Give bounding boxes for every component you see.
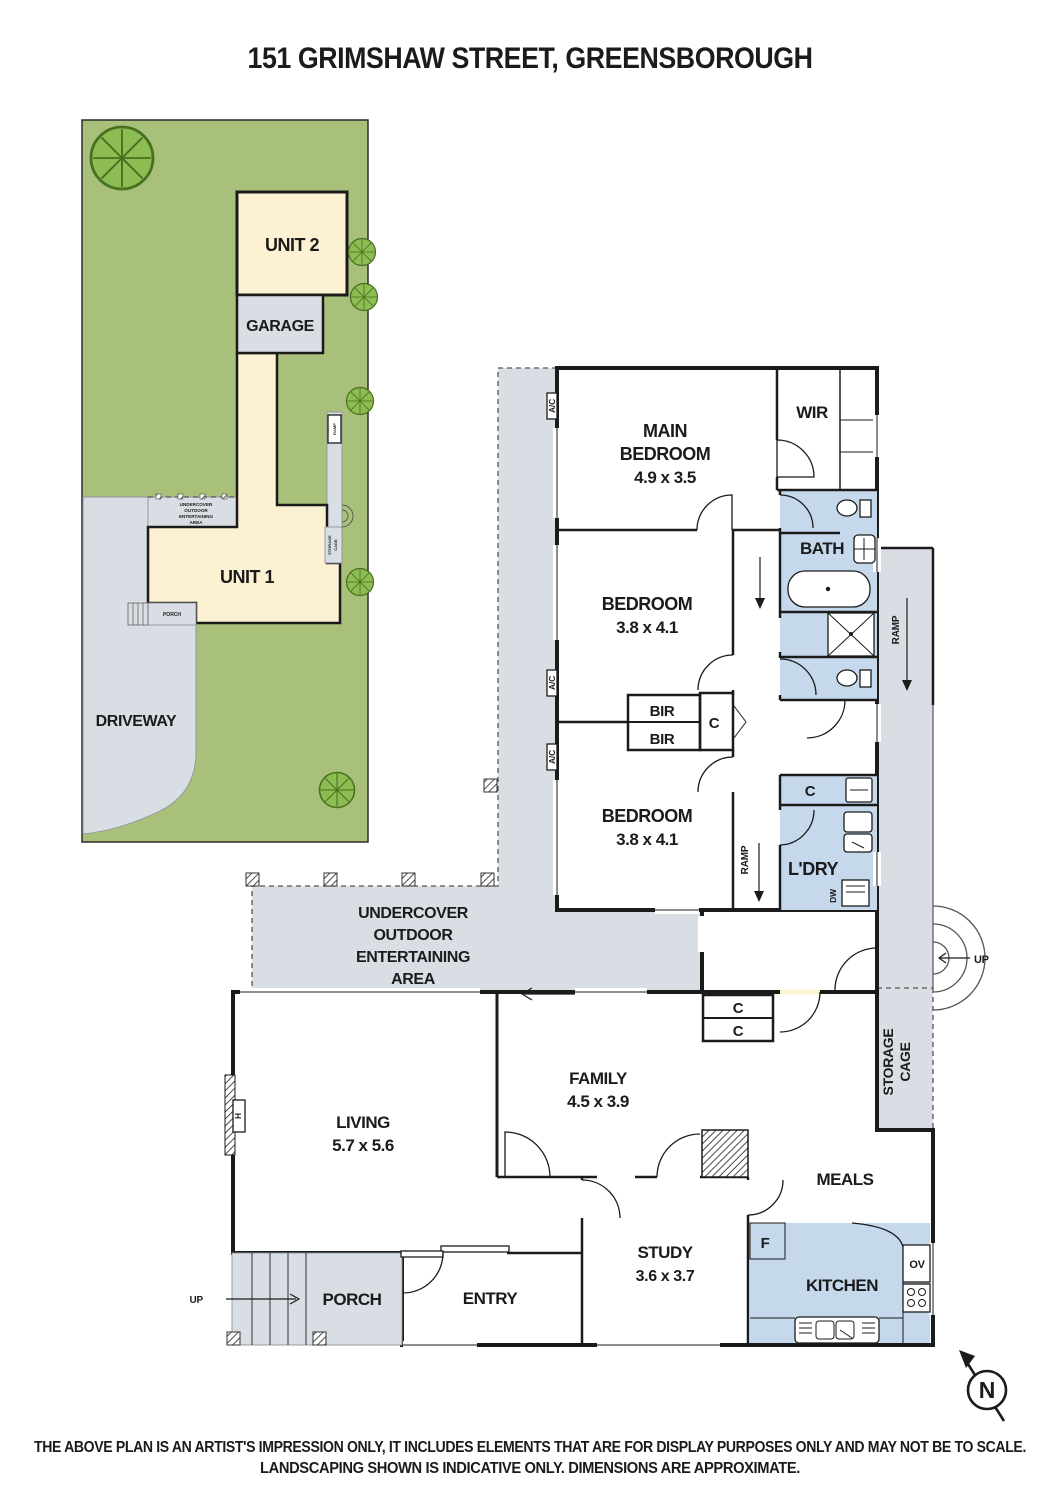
shower-icon [828, 613, 874, 656]
bath-label: BATH [800, 539, 844, 558]
bir2-label: BIR [650, 731, 675, 748]
site-storage-cage-label-2: CAGE [333, 539, 338, 551]
floorplan-page: 151 GRIMSHAW STREET, GREENSBOROUGH RAMP … [0, 0, 1060, 1500]
closet4-label: C [733, 1023, 744, 1040]
svg-text:AREA: AREA [189, 520, 203, 525]
main-bedroom-label-1: MAIN [643, 421, 687, 441]
dw-label: DW [828, 888, 838, 903]
laundry-trough-icon [846, 778, 872, 802]
toilet-icon [837, 670, 871, 687]
svg-text:AREA: AREA [391, 971, 436, 988]
toilet-icon [837, 500, 871, 517]
study-label: STUDY [637, 1243, 693, 1262]
disclaimer: THE ABOVE PLAN IS AN ARTIST'S IMPRESSION… [34, 1439, 1026, 1477]
wir-shelves [840, 368, 877, 490]
svg-text:OUTDOOR: OUTDOOR [374, 927, 454, 944]
svg-text:A/C: A/C [547, 676, 557, 690]
site-garage-label: GARAGE [246, 318, 315, 335]
family-dims: 4.5 x 3.9 [567, 1092, 629, 1111]
closet2-label: C [805, 783, 816, 800]
site-storage-cage-label-1: STORAGE [327, 535, 332, 555]
living-label: LIVING [336, 1113, 390, 1132]
bedroom3-label: BEDROOM [602, 806, 693, 826]
living-heater: H [225, 1075, 245, 1155]
svg-text:A/C: A/C [547, 750, 557, 764]
svg-text:ENTERTAINING: ENTERTAINING [356, 949, 470, 966]
page-title: 151 GRIMSHAW STREET, GREENSBOROUGH [248, 42, 813, 75]
storage-cage-label-2: CAGE [897, 1042, 913, 1081]
site-unit2-label: UNIT 2 [265, 235, 319, 255]
oven-label: OV [909, 1259, 925, 1271]
upper-hall-arrow [755, 557, 765, 609]
vanity-icon [854, 535, 875, 563]
sink-icon [795, 1317, 879, 1343]
laundry-label: L'DRY [788, 859, 839, 879]
storage-cage-label-1: STORAGE [880, 1029, 896, 1096]
bedroom2-label: BEDROOM [602, 594, 693, 614]
kitchen-label: KITCHEN [806, 1276, 878, 1295]
bir1-label: BIR [650, 703, 675, 720]
side-ramp-label: RAMP [891, 615, 902, 644]
site-porch-label: PORCH [163, 612, 181, 618]
north-arrow: N [959, 1350, 1006, 1421]
entry-label: ENTRY [463, 1289, 519, 1308]
family-label: FAMILY [569, 1069, 628, 1088]
porch-label: PORCH [323, 1290, 382, 1309]
closet3-label: C [733, 1000, 744, 1017]
site-driveway-label: DRIVEWAY [96, 713, 177, 730]
site-plan: RAMP STORAGE CAGE PORCH UNIT 2 GARAGE UN… [82, 120, 378, 842]
bir-closets [628, 693, 746, 750]
chimney [702, 1130, 748, 1177]
dishwasher-icon [842, 880, 869, 906]
closet1-label: C [709, 715, 720, 732]
porch-up-label: UP [190, 1295, 204, 1306]
svg-text:OUTDOOR: OUTDOOR [184, 508, 208, 513]
svg-text:A/C: A/C [547, 399, 557, 413]
side-up-label: UP [974, 954, 989, 966]
svg-text:UNDERCOVER: UNDERCOVER [180, 502, 213, 507]
meals-label: MEALS [817, 1170, 874, 1189]
floorplan-drawing: 151 GRIMSHAW STREET, GREENSBOROUGH RAMP … [0, 0, 1060, 1500]
disclaimer-line-2: LANDSCAPING SHOWN IS INDICATIVE ONLY. DI… [260, 1460, 800, 1477]
svg-text:ENTERTAINING: ENTERTAINING [179, 514, 214, 519]
wir-label: WIR [796, 403, 828, 422]
svg-text:UNDERCOVER: UNDERCOVER [358, 905, 469, 922]
entry-sliding-door [401, 1246, 509, 1257]
disclaimer-line-1: THE ABOVE PLAN IS AN ARTIST'S IMPRESSION… [34, 1439, 1026, 1456]
bathtub-icon [788, 571, 870, 607]
main-bedroom-label-2: BEDROOM [620, 444, 711, 464]
site-ramp-label: RAMP [332, 423, 337, 435]
heater-label: H [233, 1113, 243, 1119]
hall-ramp-label: RAMP [740, 845, 751, 874]
washer-icon [844, 812, 872, 852]
site-porch-steps [128, 603, 148, 625]
rear-hall [702, 910, 877, 992]
study-dims: 3.6 x 3.7 [636, 1268, 695, 1285]
fridge-label: F [761, 1235, 770, 1252]
bedroom3-dims: 3.8 x 4.1 [616, 830, 678, 849]
hall-ramp-arrow [754, 843, 764, 902]
site-unit1-label: UNIT 1 [220, 567, 274, 587]
living-dims: 5.7 x 5.6 [332, 1136, 394, 1155]
main-bedroom-dims: 4.9 x 3.5 [634, 468, 696, 487]
bedroom2-dims: 3.8 x 4.1 [616, 618, 678, 637]
north-label: N [979, 1377, 996, 1403]
